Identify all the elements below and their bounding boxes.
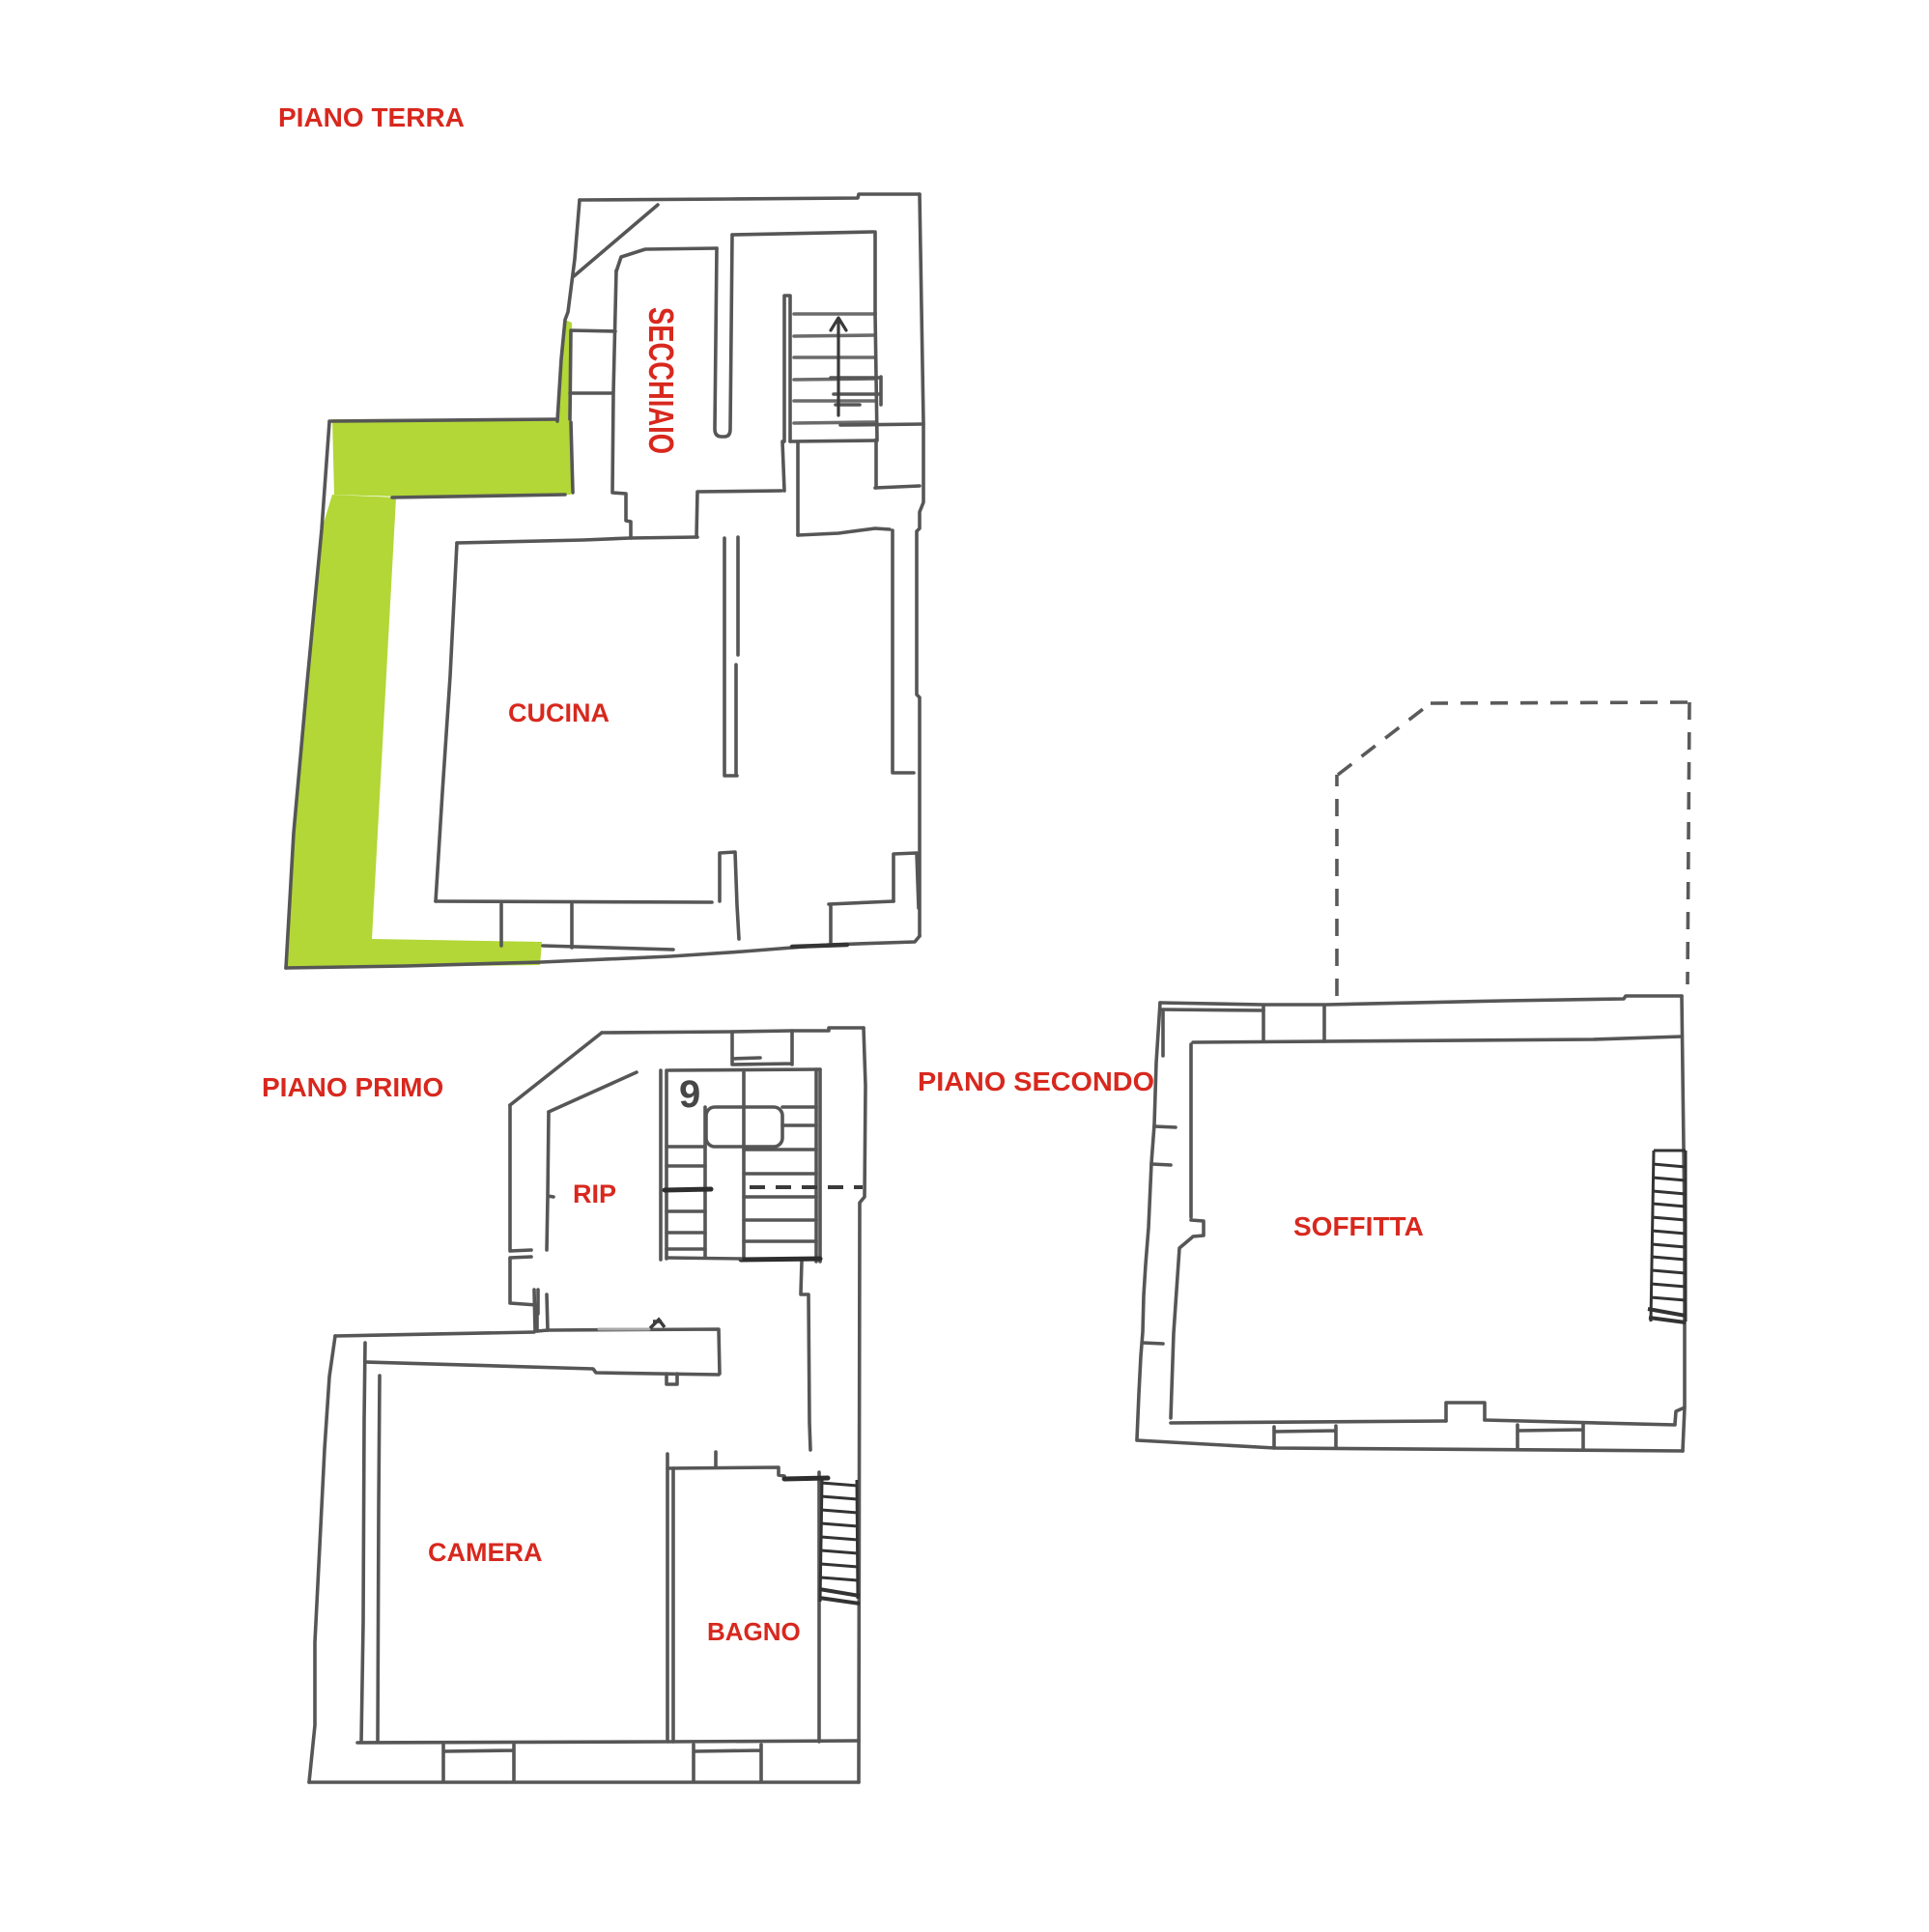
svg-text:PIANO SECONDO: PIANO SECONDO xyxy=(918,1066,1154,1096)
svg-text:RIP: RIP xyxy=(573,1179,616,1208)
svg-text:PIANO PRIMO: PIANO PRIMO xyxy=(262,1072,443,1102)
svg-text:9: 9 xyxy=(679,1073,700,1116)
svg-text:CUCINA: CUCINA xyxy=(508,698,610,727)
svg-text:CAMERA: CAMERA xyxy=(428,1538,543,1567)
svg-text:BAGNO: BAGNO xyxy=(707,1617,801,1646)
svg-text:SOFFITTA: SOFFITTA xyxy=(1293,1211,1424,1241)
svg-text:SECCHIAIO: SECCHIAIO xyxy=(641,307,681,454)
svg-text:PIANO TERRA: PIANO TERRA xyxy=(278,102,465,132)
